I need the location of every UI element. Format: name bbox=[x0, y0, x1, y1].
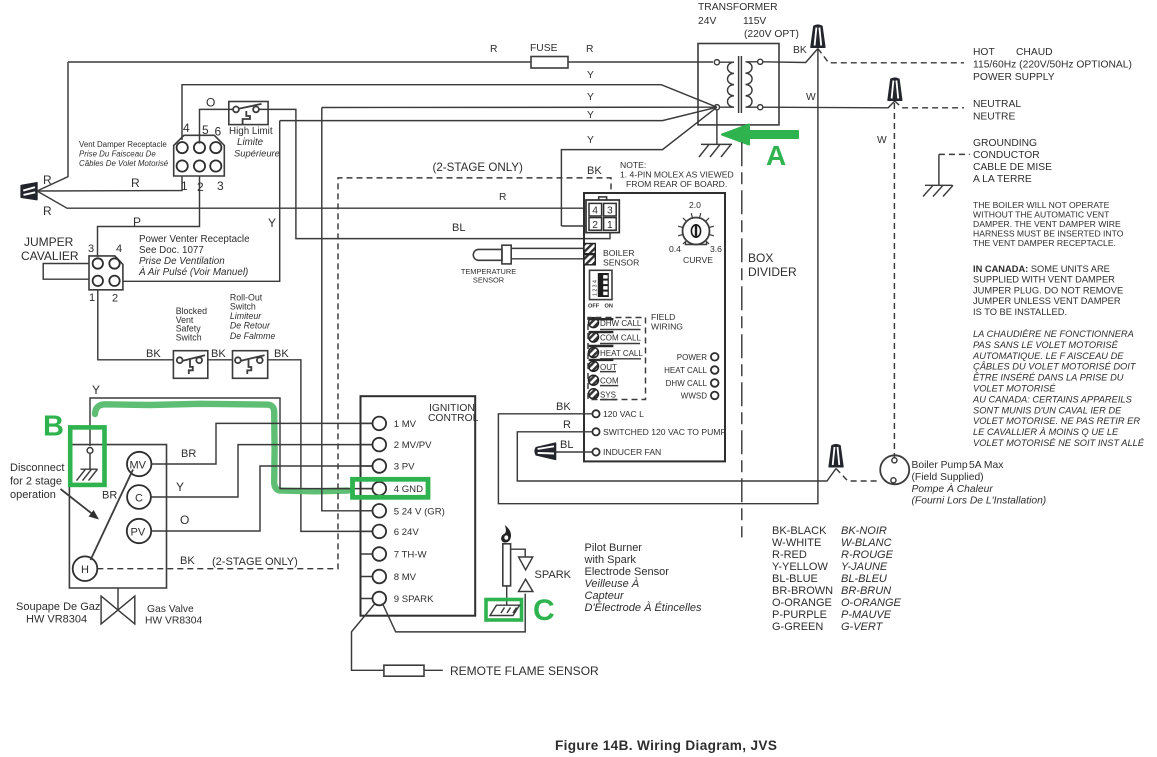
svg-text:3: 3 bbox=[217, 179, 224, 193]
svg-text:8 MV: 8 MV bbox=[394, 572, 417, 583]
svg-text:A LA TERRE: A LA TERRE bbox=[973, 174, 1032, 185]
svg-text:SYS: SYS bbox=[600, 390, 616, 399]
svg-text:À Air Pulsé (Voir Manuel): À Air Pulsé (Voir Manuel) bbox=[138, 267, 248, 278]
svg-text:BK: BK bbox=[211, 348, 226, 360]
svg-text:INDUCER FAN: INDUCER FAN bbox=[603, 447, 661, 457]
svg-text:Y: Y bbox=[587, 70, 594, 81]
svg-text:HW VR8304: HW VR8304 bbox=[26, 614, 87, 626]
svg-text:with Spark: with Spark bbox=[584, 554, 637, 566]
svg-text:1: 1 bbox=[607, 220, 613, 231]
svg-text:2: 2 bbox=[592, 220, 598, 231]
svg-text:HEAT CALL: HEAT CALL bbox=[664, 366, 707, 375]
svg-text:5: 5 bbox=[202, 123, 209, 137]
svg-text:PV: PV bbox=[131, 527, 146, 539]
svg-text:HARNESS MUST BE INSERTED INTO: HARNESS MUST BE INSERTED INTO bbox=[973, 229, 1124, 239]
svg-text:Vent Damper Receptacle: Vent Damper Receptacle bbox=[79, 140, 167, 149]
svg-text:W-BLANC: W-BLANC bbox=[841, 537, 892, 549]
svg-text:THE VENT DAMPER RECEPTACLE.: THE VENT DAMPER RECEPTACLE. bbox=[973, 238, 1116, 248]
svg-text:120 VAC L: 120 VAC L bbox=[603, 409, 644, 419]
svg-text:CONDUCTOR: CONDUCTOR bbox=[973, 150, 1040, 161]
svg-text:H: H bbox=[81, 564, 89, 576]
svg-text:WIRING: WIRING bbox=[651, 322, 683, 332]
svg-text:Y-YELLOW: Y-YELLOW bbox=[772, 561, 828, 573]
svg-text:IS TO BE INSTALLED.: IS TO BE INSTALLED. bbox=[973, 307, 1067, 317]
svg-text:HEAT CALL: HEAT CALL bbox=[600, 349, 643, 358]
svg-text:24V: 24V bbox=[698, 16, 716, 27]
svg-text:O: O bbox=[206, 96, 215, 110]
svg-text:JUMPER: JUMPER bbox=[24, 235, 74, 249]
svg-text:BL: BL bbox=[452, 222, 465, 234]
svg-text:BK: BK bbox=[146, 348, 161, 360]
svg-text:1: 1 bbox=[181, 179, 188, 193]
svg-text:SWITCHED 120 VAC TO PUMP: SWITCHED 120 VAC TO PUMP bbox=[603, 427, 726, 437]
svg-text:NEUTRE: NEUTRE bbox=[973, 112, 1015, 123]
svg-text:GROUNDING: GROUNDING bbox=[973, 138, 1037, 149]
svg-text:BL: BL bbox=[560, 439, 573, 451]
svg-text:De Retour: De Retour bbox=[230, 321, 271, 331]
svg-text:G-GREEN: G-GREEN bbox=[772, 621, 823, 633]
svg-text:IN CANADA: SOME UNITS ARE: IN CANADA: SOME UNITS ARE bbox=[973, 264, 1110, 274]
svg-text:(2-STAGE ONLY): (2-STAGE ONLY) bbox=[212, 556, 298, 568]
svg-text:R: R bbox=[131, 176, 140, 190]
svg-text:C: C bbox=[135, 493, 143, 505]
svg-text:BL-BLEU: BL-BLEU bbox=[841, 573, 887, 585]
svg-text:BOILER: BOILER bbox=[603, 248, 635, 258]
svg-text:1 2 3 4: 1 2 3 4 bbox=[593, 280, 599, 296]
svg-text:ON: ON bbox=[605, 304, 613, 310]
svg-text:PAS SANS LE VOLET MOTORISÉ: PAS SANS LE VOLET MOTORISÉ bbox=[973, 340, 1119, 350]
svg-text:(2-STAGE ONLY): (2-STAGE ONLY) bbox=[433, 161, 524, 174]
svg-text:FIELD: FIELD bbox=[651, 312, 675, 322]
svg-text:W: W bbox=[806, 92, 816, 103]
svg-text:NOTE:: NOTE: bbox=[620, 160, 646, 170]
svg-text:DAMPER. THE VENT DAMPER WIRE: DAMPER. THE VENT DAMPER WIRE bbox=[973, 219, 1121, 229]
svg-text:7 TH-W: 7 TH-W bbox=[394, 550, 428, 561]
svg-text:High Limit: High Limit bbox=[229, 126, 273, 137]
svg-text:Y: Y bbox=[587, 92, 594, 103]
svg-text:9 SPARK: 9 SPARK bbox=[394, 594, 434, 605]
svg-text:POWER SUPPLY: POWER SUPPLY bbox=[973, 72, 1055, 83]
svg-text:HW VR8304: HW VR8304 bbox=[145, 616, 202, 627]
svg-text:1. 4-PIN MOLEX AS VIEWED: 1. 4-PIN MOLEX AS VIEWED bbox=[620, 170, 734, 180]
svg-text:Pompe À Chaleur: Pompe À Chaleur bbox=[912, 482, 994, 495]
svg-text:LE CAVALLIER À MOINS Q UE LE: LE CAVALLIER À MOINS Q UE LE bbox=[973, 427, 1119, 437]
svg-text:THE BOILER WILL NOT OPERATE: THE BOILER WILL NOT OPERATE bbox=[973, 200, 1110, 210]
svg-text:2.0: 2.0 bbox=[689, 200, 701, 210]
svg-text:BK-NOIR: BK-NOIR bbox=[841, 525, 887, 537]
svg-text:BR-BRUN: BR-BRUN bbox=[841, 585, 891, 597]
svg-text:C: C bbox=[533, 594, 555, 627]
svg-text:Y: Y bbox=[268, 216, 276, 230]
svg-text:Supérieure: Supérieure bbox=[234, 148, 280, 159]
svg-text:BOX: BOX bbox=[748, 251, 773, 265]
svg-text:SENSOR: SENSOR bbox=[473, 275, 504, 284]
svg-text:3 PV: 3 PV bbox=[394, 462, 415, 473]
svg-text:BR-BROWN: BR-BROWN bbox=[772, 585, 833, 597]
svg-text:Capteur: Capteur bbox=[585, 590, 625, 602]
svg-text:R: R bbox=[43, 204, 52, 218]
svg-text:W-WHITE: W-WHITE bbox=[772, 537, 821, 549]
svg-text:Power Venter Receptacle: Power Venter Receptacle bbox=[139, 234, 250, 245]
svg-text:FUSE: FUSE bbox=[530, 43, 558, 54]
svg-text:Soupape De Gaz: Soupape De Gaz bbox=[16, 601, 100, 613]
svg-text:W: W bbox=[877, 135, 887, 146]
svg-text:POWER: POWER bbox=[677, 353, 707, 362]
svg-text:Disconnect: Disconnect bbox=[10, 462, 64, 474]
svg-text:BK: BK bbox=[587, 165, 602, 177]
svg-text:BR: BR bbox=[181, 448, 196, 460]
svg-text:BL-BLUE: BL-BLUE bbox=[772, 573, 818, 585]
svg-text:operation: operation bbox=[10, 489, 56, 501]
svg-text:SPARK: SPARK bbox=[535, 569, 572, 581]
svg-text:Y-JAUNE: Y-JAUNE bbox=[841, 561, 888, 573]
svg-text:Y: Y bbox=[176, 480, 184, 494]
svg-text:ÇÂBLES DU VOLET MOTORISÉ DOIT: ÇÂBLES DU VOLET MOTORISÉ DOIT bbox=[973, 362, 1137, 372]
svg-text:BK: BK bbox=[793, 45, 807, 56]
svg-text:D'Électrode À Étincelles: D'Électrode À Étincelles bbox=[585, 601, 703, 614]
svg-text:(Field Supplied): (Field Supplied) bbox=[912, 472, 984, 483]
svg-text:4: 4 bbox=[592, 206, 598, 217]
svg-text:115V: 115V bbox=[743, 16, 766, 27]
svg-text:Y: Y bbox=[92, 383, 100, 397]
svg-text:Prise De Ventilation: Prise De Ventilation bbox=[139, 256, 225, 267]
svg-text:A: A bbox=[766, 140, 786, 171]
svg-text:6 24V: 6 24V bbox=[394, 527, 420, 538]
svg-text:B: B bbox=[43, 411, 64, 443]
svg-text:Prise Du Faisceau De: Prise Du Faisceau De bbox=[79, 150, 156, 159]
svg-text:4 GND: 4 GND bbox=[394, 484, 423, 495]
svg-text:REMOTE FLAME SENSOR: REMOTE FLAME SENSOR bbox=[450, 664, 599, 678]
svg-text:3: 3 bbox=[607, 206, 613, 217]
svg-text:(220V OPT): (220V OPT) bbox=[744, 29, 799, 40]
svg-text:CURVE: CURVE bbox=[683, 255, 713, 265]
svg-text:O: O bbox=[180, 513, 189, 527]
svg-text:CABLE DE MISE: CABLE DE MISE bbox=[973, 162, 1052, 173]
svg-text:CONTROL: CONTROL bbox=[428, 413, 479, 424]
svg-text:Y: Y bbox=[587, 110, 594, 121]
svg-text:AUTOMATIQUE. LE F AISCEAU DE: AUTOMATIQUE. LE F AISCEAU DE bbox=[972, 351, 1124, 361]
svg-text:Limiteur: Limiteur bbox=[230, 311, 262, 321]
svg-text:CAVALIER: CAVALIER bbox=[21, 249, 79, 263]
svg-text:(Fourni Lors De L'Installation: (Fourni Lors De L'Installation) bbox=[912, 496, 1047, 507]
svg-text:WWSD: WWSD bbox=[681, 392, 707, 401]
svg-text:COM CALL: COM CALL bbox=[600, 334, 641, 343]
svg-text:SUPPLIED WITH VENT DAMPER: SUPPLIED WITH VENT DAMPER bbox=[973, 275, 1115, 285]
svg-text:Figure 14B. Wiring Diagram, JV: Figure 14B. Wiring Diagram, JVS bbox=[555, 738, 777, 753]
svg-text:3: 3 bbox=[88, 243, 94, 255]
svg-text:BK-BLACK: BK-BLACK bbox=[772, 525, 827, 537]
svg-text:115/60Hz (220V/50Hz OPTIONAL): 115/60Hz (220V/50Hz OPTIONAL) bbox=[973, 60, 1132, 71]
svg-text:Switch: Switch bbox=[176, 332, 202, 342]
svg-text:Gas Valve: Gas Valve bbox=[147, 604, 194, 615]
svg-text:R-RED: R-RED bbox=[772, 549, 807, 561]
svg-text:G-VERT: G-VERT bbox=[841, 621, 884, 633]
svg-text:Pilot Burner: Pilot Burner bbox=[585, 542, 643, 554]
svg-text:6: 6 bbox=[215, 125, 222, 139]
svg-text:LA CHAUDIÈRE NE FONCTIONNERA: LA CHAUDIÈRE NE FONCTIONNERA bbox=[973, 329, 1134, 339]
svg-text:VOLET MOTORISÉ: VOLET MOTORISÉ bbox=[973, 384, 1056, 394]
svg-text:VOLET MOTORISE. NE PAS RETIR E: VOLET MOTORISE. NE PAS RETIR ER bbox=[973, 416, 1140, 426]
svg-text:TRANSFORMER: TRANSFORMER bbox=[698, 2, 778, 13]
svg-text:P-MAUVE: P-MAUVE bbox=[841, 609, 892, 621]
svg-text:WITHOUT THE AUTOMATIC VENT: WITHOUT THE AUTOMATIC VENT bbox=[973, 210, 1110, 220]
svg-text:P-PURPLE: P-PURPLE bbox=[772, 609, 827, 621]
svg-text:O-ORANGE: O-ORANGE bbox=[841, 597, 902, 609]
svg-text:JUMPER UNLESS VENT DAMPER: JUMPER UNLESS VENT DAMPER bbox=[973, 296, 1121, 306]
svg-text:BK: BK bbox=[274, 348, 289, 360]
svg-text:4: 4 bbox=[183, 121, 190, 135]
svg-text:Boiler Pump5A Max: Boiler Pump5A Max bbox=[912, 460, 1005, 471]
svg-text:R: R bbox=[499, 192, 506, 203]
svg-text:COM: COM bbox=[600, 377, 619, 386]
svg-text:BR: BR bbox=[102, 490, 117, 502]
svg-text:VOLET MOTORISÉ NE SOIT INST AL: VOLET MOTORISÉ NE SOIT INST ALLÉ bbox=[973, 438, 1145, 448]
svg-text:4: 4 bbox=[116, 243, 122, 255]
svg-text:Veilleuse À: Veilleuse À bbox=[585, 577, 640, 590]
svg-text:1: 1 bbox=[89, 292, 95, 304]
svg-text:ÊTRE INSÉRÉ DANS LA PRISE DU: ÊTRE INSÉRÉ DANS LA PRISE DU bbox=[973, 373, 1124, 383]
svg-text:for 2 stage: for 2 stage bbox=[10, 476, 62, 488]
svg-text:2 MV/PV: 2 MV/PV bbox=[394, 440, 432, 451]
svg-text:OFF: OFF bbox=[588, 304, 600, 310]
svg-text:2: 2 bbox=[112, 293, 118, 305]
svg-text:OUT: OUT bbox=[600, 363, 617, 372]
svg-text:Y: Y bbox=[587, 135, 594, 146]
svg-text:BK: BK bbox=[556, 401, 571, 413]
svg-text:DIVIDER: DIVIDER bbox=[748, 265, 797, 279]
svg-text:3.6: 3.6 bbox=[710, 244, 722, 254]
svg-text:0.4: 0.4 bbox=[669, 244, 681, 254]
svg-text:P: P bbox=[133, 215, 141, 229]
svg-text:BK: BK bbox=[180, 555, 195, 567]
svg-text:2: 2 bbox=[197, 180, 204, 194]
svg-text:R: R bbox=[490, 44, 497, 55]
svg-text:R: R bbox=[586, 44, 593, 55]
svg-text:Electrode Sensor: Electrode Sensor bbox=[585, 566, 670, 578]
svg-text:R: R bbox=[43, 173, 52, 187]
svg-text:DHW CALL: DHW CALL bbox=[666, 379, 708, 388]
svg-text:FROM REAR OF BOARD.: FROM REAR OF BOARD. bbox=[626, 179, 727, 189]
svg-text:AU CANADA: CERTAINS APPAREILS: AU CANADA: CERTAINS APPAREILS bbox=[972, 394, 1133, 404]
svg-text:1 MV: 1 MV bbox=[394, 419, 417, 430]
svg-text:NEUTRAL: NEUTRAL bbox=[973, 99, 1021, 110]
svg-text:SONT MUNIS D'UN CAVAL IER DE: SONT MUNIS D'UN CAVAL IER DE bbox=[973, 405, 1122, 415]
svg-text:SENSOR: SENSOR bbox=[603, 258, 639, 268]
svg-text:See Doc. 1077: See Doc. 1077 bbox=[139, 245, 204, 256]
svg-text:JUMPER PLUG. DO NOT REMOVE: JUMPER PLUG. DO NOT REMOVE bbox=[973, 285, 1123, 295]
svg-text:Câbles De Volet Motorisé: Câbles De Volet Motorisé bbox=[79, 159, 169, 168]
svg-text:R-ROUGE: R-ROUGE bbox=[841, 549, 894, 561]
svg-text:5 24 V (GR): 5 24 V (GR) bbox=[394, 507, 445, 518]
svg-text:R: R bbox=[563, 419, 571, 431]
svg-text:De Falmme: De Falmme bbox=[230, 331, 276, 341]
svg-text:O-ORANGE: O-ORANGE bbox=[772, 597, 832, 609]
